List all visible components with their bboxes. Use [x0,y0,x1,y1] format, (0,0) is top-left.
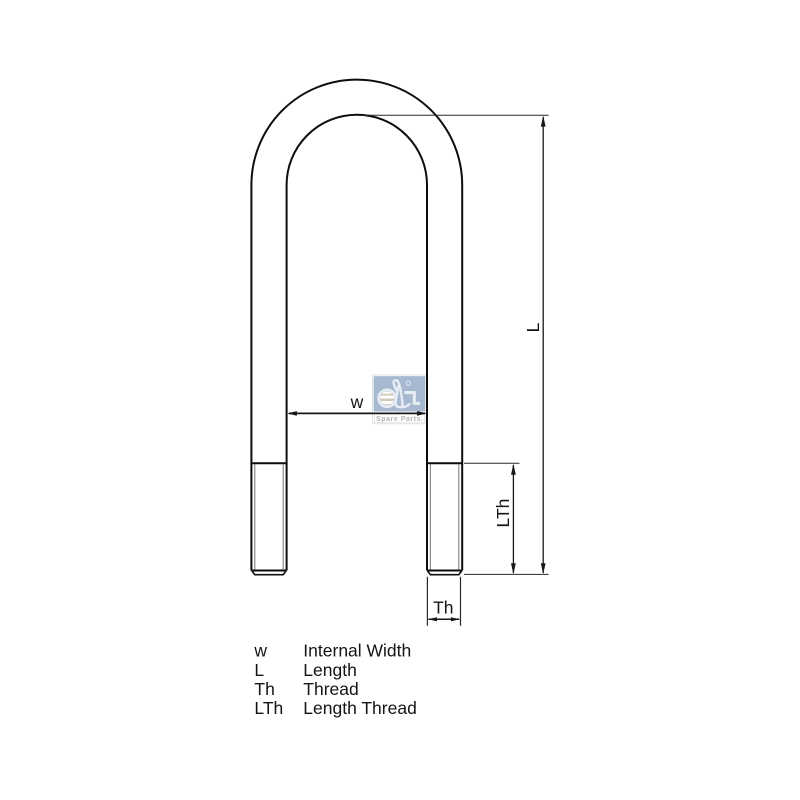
svg-text:w: w [253,641,267,661]
svg-text:Spare Parts.: Spare Parts. [376,414,423,423]
svg-text:Thread: Thread [303,679,358,699]
svg-text:Th: Th [254,679,274,699]
svg-text:Th: Th [433,598,453,618]
svg-text:w: w [350,392,364,412]
svg-text:LTh: LTh [254,698,283,718]
svg-text:Internal Width: Internal Width [303,641,411,661]
svg-text:L: L [254,660,264,680]
svg-text:LTh: LTh [493,499,513,528]
svg-text:Length Thread: Length Thread [303,698,417,718]
svg-text:Length: Length [303,660,357,680]
svg-text:L: L [523,322,543,332]
